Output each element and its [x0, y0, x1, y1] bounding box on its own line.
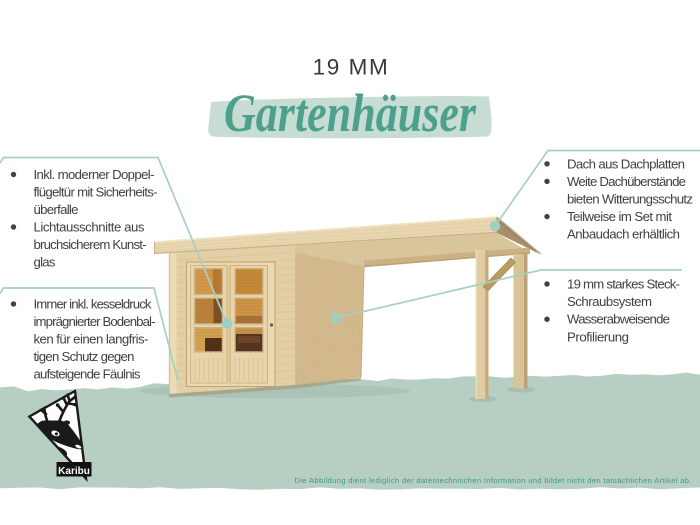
- svg-text:Weite Dachüberstände: Weite Dachüberstände: [567, 174, 686, 189]
- svg-text:bieten Witterungsschutz: bieten Witterungsschutz: [567, 192, 693, 207]
- svg-text:tigen Schutz gegen: tigen Schutz gegen: [34, 349, 135, 364]
- svg-text:bruchsicherem Kunst-: bruchsicherem Kunst-: [34, 237, 147, 252]
- svg-text:19 MM: 19 MM: [313, 54, 390, 79]
- svg-text:überfalle: überfalle: [34, 202, 79, 217]
- svg-text:flügeltür mit Sicherheits-: flügeltür mit Sicherheits-: [34, 185, 158, 200]
- svg-text:19 mm starkes Steck-: 19 mm starkes Steck-: [567, 277, 680, 292]
- svg-text:aufsteigende Fäulnis: aufsteigende Fäulnis: [34, 367, 141, 382]
- svg-text:Gartenhäuser: Gartenhäuser: [224, 83, 477, 143]
- svg-text:ken für einen langfris-: ken für einen langfris-: [34, 332, 149, 347]
- svg-text:Karibu: Karibu: [58, 466, 90, 477]
- svg-text:imprägnierter Bodenbal-: imprägnierter Bodenbal-: [34, 314, 156, 329]
- svg-text:Lichtausschnitte aus: Lichtausschnitte aus: [34, 220, 145, 235]
- svg-text:Teilweise im Set mit: Teilweise im Set mit: [567, 209, 672, 224]
- svg-text:Dach aus Dachplatten: Dach aus Dachplatten: [567, 156, 685, 171]
- svg-text:Profilierung: Profilierung: [567, 329, 629, 344]
- svg-text:Die Abbildung dient lediglich: Die Abbildung dient lediglich der datent…: [295, 476, 692, 485]
- svg-text:Wasserabweisende: Wasserabweisende: [567, 312, 670, 327]
- svg-text:Anbaudach erhältlich: Anbaudach erhältlich: [567, 227, 680, 242]
- svg-text:glas: glas: [34, 255, 56, 270]
- svg-text:Immer inkl. kesseldruck: Immer inkl. kesseldruck: [34, 297, 152, 312]
- svg-text:Schraubsystem: Schraubsystem: [567, 294, 652, 309]
- svg-text:Inkl. moderner Doppel-: Inkl. moderner Doppel-: [34, 167, 155, 182]
